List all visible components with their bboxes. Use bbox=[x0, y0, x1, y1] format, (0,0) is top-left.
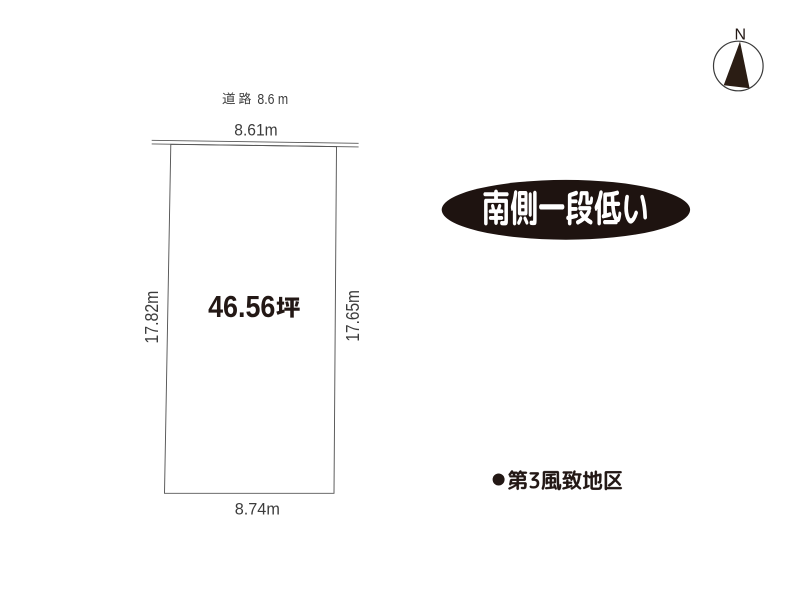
svg-text:8.74m: 8.74m bbox=[235, 500, 280, 519]
svg-text:17.65m: 17.65m bbox=[343, 290, 363, 342]
svg-text:8.6 m: 8.6 m bbox=[257, 92, 288, 108]
svg-text:46.56: 46.56 bbox=[208, 289, 275, 324]
svg-text:8.61m: 8.61m bbox=[234, 121, 277, 140]
svg-text:N: N bbox=[735, 26, 747, 43]
svg-text:17.82m: 17.82m bbox=[142, 291, 162, 344]
